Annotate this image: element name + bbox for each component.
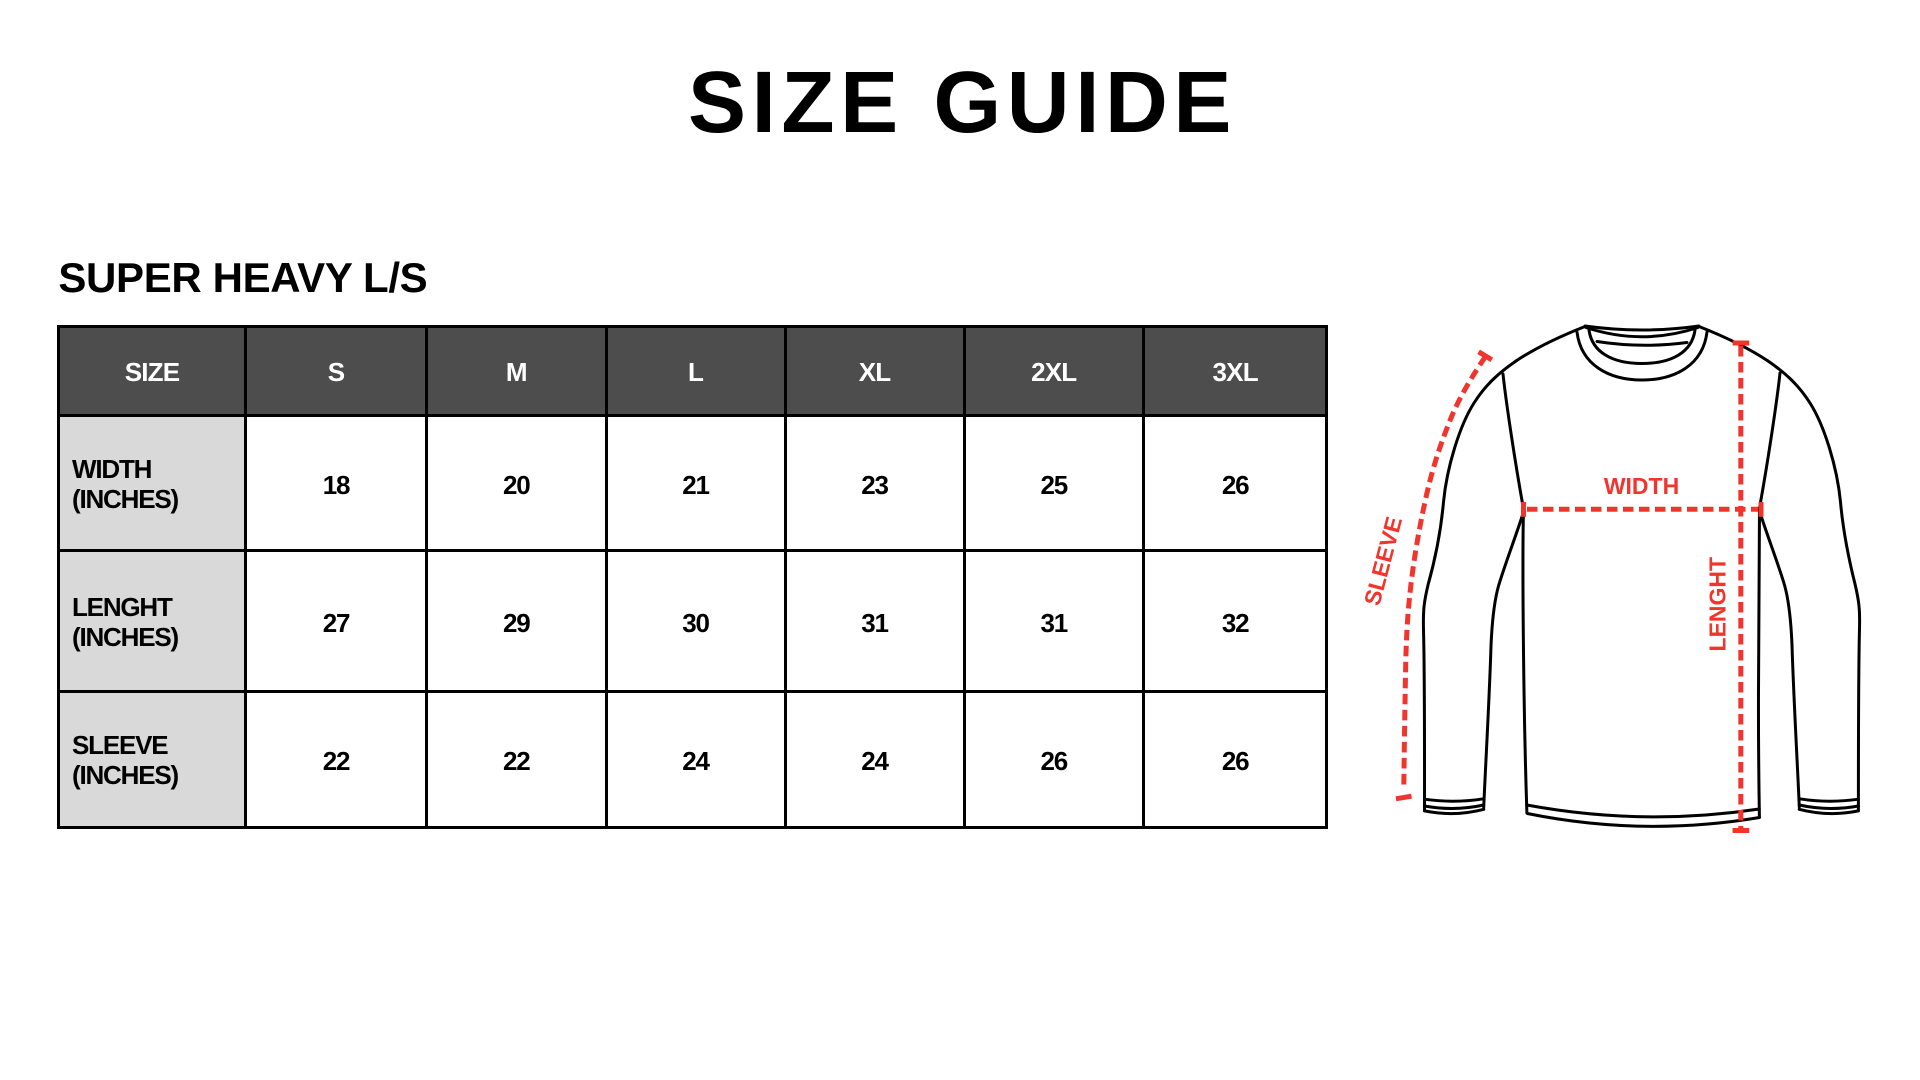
svg-text:SLEEVE: SLEEVE [1359, 514, 1407, 608]
svg-text:LENGHT: LENGHT [1704, 557, 1730, 652]
svg-text:WIDTH: WIDTH [1604, 473, 1679, 499]
